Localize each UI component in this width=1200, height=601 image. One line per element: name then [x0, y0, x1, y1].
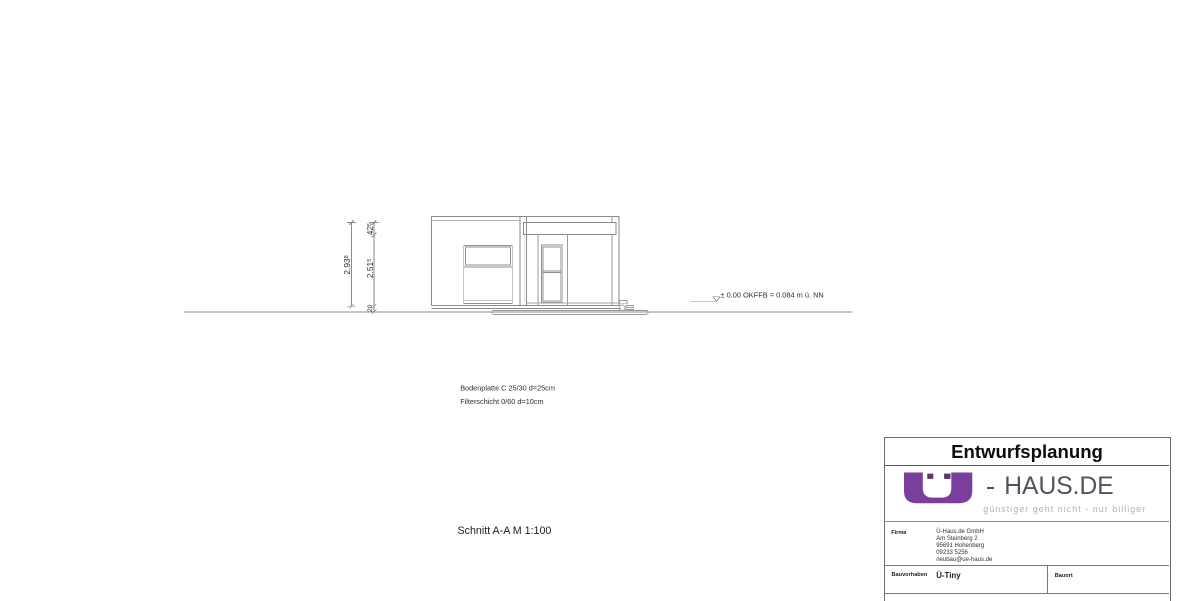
svg-text:2.515: 2.515 — [365, 259, 375, 278]
svg-text:Bodenplatte C 25/30 d=25cm: Bodenplatte C 25/30 d=25cm — [460, 383, 555, 392]
svg-text:Schnitt A-A M 1:100: Schnitt A-A M 1:100 — [458, 525, 552, 537]
svg-text:425: 425 — [365, 223, 375, 235]
svg-text:20: 20 — [367, 304, 374, 312]
svg-text:2.938: 2.938 — [342, 255, 352, 274]
svg-text:± 0.00 OKFFB = 0.084 m ü. NN: ± 0.00 OKFFB = 0.084 m ü. NN — [721, 291, 824, 300]
svg-text:Filterschicht 0/60 d=10cm: Filterschicht 0/60 d=10cm — [460, 397, 543, 406]
